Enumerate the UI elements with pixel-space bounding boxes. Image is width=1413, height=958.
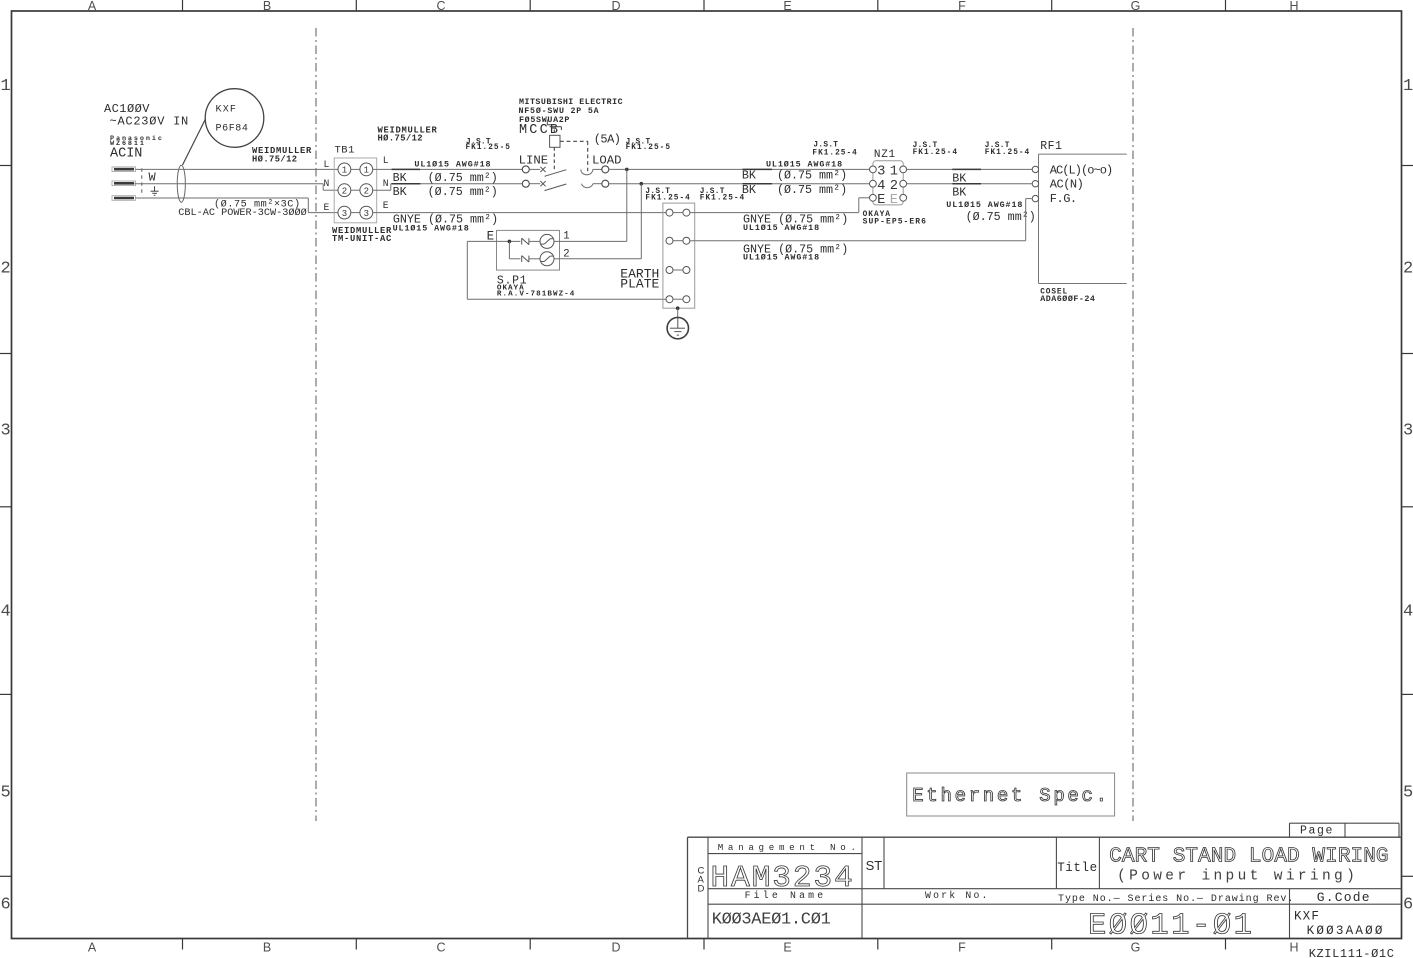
svg-text:2: 2 <box>1 260 11 279</box>
svg-text:3: 3 <box>877 164 885 179</box>
svg-text:FK1.25-5: FK1.25-5 <box>626 144 671 152</box>
svg-text:KXF: KXF <box>216 105 238 116</box>
svg-text:BK (Ø.75 mm²): BK (Ø.75 mm²) <box>742 169 847 183</box>
svg-text:CBL-AC POWER-3CW-3ØØØ: CBL-AC POWER-3CW-3ØØØ <box>178 207 306 219</box>
svg-text:1: 1 <box>563 231 569 243</box>
svg-text:LINE: LINE <box>519 153 549 167</box>
svg-text:4: 4 <box>1 603 11 622</box>
svg-text:UL1Ø15 AWG#18: UL1Ø15 AWG#18 <box>393 224 470 234</box>
svg-text:2: 2 <box>890 179 898 194</box>
svg-text:LOAD: LOAD <box>592 153 622 167</box>
svg-text:RF1: RF1 <box>1040 140 1062 153</box>
svg-text:E: E <box>324 202 330 213</box>
svg-text:3: 3 <box>1403 422 1413 441</box>
svg-text:H: H <box>1289 941 1298 955</box>
svg-text:UL1Ø15 AWG#18: UL1Ø15 AWG#18 <box>414 160 491 170</box>
svg-text:KØØ3AEØ1.CØ1: KØØ3AEØ1.CØ1 <box>712 911 831 930</box>
svg-text:FK1.25-4: FK1.25-4 <box>913 149 958 157</box>
svg-text:4: 4 <box>877 179 885 194</box>
svg-text:FK1.25-4: FK1.25-4 <box>645 194 690 202</box>
svg-text:SUP-EP5-ER6: SUP-EP5-ER6 <box>863 217 927 226</box>
svg-text:(5A): (5A) <box>594 133 621 147</box>
svg-text:E: E <box>383 200 389 211</box>
svg-text:2: 2 <box>342 186 347 196</box>
svg-text:E: E <box>890 193 898 208</box>
svg-text:KZIL111-Ø1C: KZIL111-Ø1C <box>1309 947 1395 958</box>
svg-text:KXF: KXF <box>1294 910 1320 924</box>
svg-text:G: G <box>1131 0 1141 13</box>
svg-text:AC(L)(o~o): AC(L)(o~o) <box>1050 163 1113 177</box>
svg-text:FK1.25-5: FK1.25-5 <box>466 144 511 152</box>
svg-text:H: H <box>1289 0 1298 13</box>
svg-text:BK (Ø.75 mm²): BK (Ø.75 mm²) <box>742 183 847 197</box>
svg-text:EØØ11-Ø1: EØØ11-Ø1 <box>1088 910 1254 944</box>
svg-text:Type No.— Series No.— Drawing: Type No.— Series No.— Drawing Rev. <box>1058 893 1294 905</box>
svg-text:File Name: File Name <box>745 890 827 901</box>
svg-text:L: L <box>324 159 330 170</box>
svg-text:~AC23ØV IN: ~AC23ØV IN <box>110 115 190 129</box>
svg-text:Ethernet Spec.: Ethernet Spec. <box>912 785 1109 807</box>
svg-text:1: 1 <box>890 164 898 179</box>
svg-text:W: W <box>149 170 157 184</box>
svg-text:1: 1 <box>1 77 11 96</box>
svg-text:1: 1 <box>364 166 369 176</box>
svg-text:E: E <box>783 941 791 955</box>
svg-text:ACIN: ACIN <box>110 147 142 162</box>
svg-text:Management No.: Management No. <box>718 842 861 853</box>
svg-text:TB1: TB1 <box>335 145 355 157</box>
svg-text:D: D <box>611 941 620 955</box>
svg-text:FK1.25-4: FK1.25-4 <box>700 194 745 202</box>
svg-text:F: F <box>958 941 966 955</box>
svg-text:BK: BK <box>952 185 966 199</box>
svg-text:N: N <box>383 178 389 189</box>
svg-text:6: 6 <box>1 896 11 915</box>
svg-text:D: D <box>611 0 620 13</box>
svg-text:UL1Ø15 AWG#18: UL1Ø15 AWG#18 <box>743 223 820 233</box>
svg-text:B: B <box>263 941 271 955</box>
svg-text:ADA6ØØF-24: ADA6ØØF-24 <box>1040 294 1095 304</box>
svg-text:BK (Ø.75 mm²): BK (Ø.75 mm²) <box>393 185 498 199</box>
svg-text:5: 5 <box>1403 784 1413 803</box>
svg-text:Title: Title <box>1057 861 1098 875</box>
svg-text:4: 4 <box>1403 603 1413 622</box>
svg-text:N: N <box>324 178 330 189</box>
svg-text:E: E <box>783 0 791 13</box>
svg-text:NF5Ø-SWU 2P 5A: NF5Ø-SWU 2P 5A <box>519 106 600 116</box>
svg-text:UL1Ø15 AWG#18: UL1Ø15 AWG#18 <box>946 200 1023 210</box>
svg-text:(Power input wiring): (Power input wiring) <box>1117 868 1358 884</box>
svg-text:E: E <box>877 193 885 208</box>
svg-text:CART STAND LOAD WIRING: CART STAND LOAD WIRING <box>1109 846 1388 869</box>
svg-text:1: 1 <box>342 166 347 176</box>
svg-text:UL1Ø15 AWG#18: UL1Ø15 AWG#18 <box>766 160 843 170</box>
svg-text:C: C <box>436 0 445 13</box>
svg-text:UL1Ø15 AWG#18: UL1Ø15 AWG#18 <box>743 253 820 263</box>
svg-text:KØØ3AAØØ: KØØ3AAØØ <box>1307 924 1385 938</box>
svg-text:B: B <box>263 0 271 13</box>
svg-text:C: C <box>436 941 445 955</box>
svg-text:PLATE: PLATE <box>620 276 659 291</box>
svg-text:HØ.75/12: HØ.75/12 <box>252 155 297 165</box>
svg-text:F: F <box>958 0 966 13</box>
svg-text:MITSUBISHI ELECTRIC: MITSUBISHI ELECTRIC <box>519 98 623 107</box>
svg-text:2: 2 <box>364 186 369 196</box>
svg-text:3: 3 <box>1 422 11 441</box>
svg-text:2: 2 <box>1403 260 1413 279</box>
svg-text:L: L <box>383 155 389 166</box>
svg-text:Page: Page <box>1300 824 1334 837</box>
svg-text:J.S.T: J.S.T <box>813 142 838 150</box>
svg-text:ST: ST <box>866 858 883 873</box>
svg-text:BK (Ø.75 mm²): BK (Ø.75 mm²) <box>393 171 498 185</box>
svg-text:2: 2 <box>563 248 569 260</box>
svg-text:R.A.V-781BWZ-4: R.A.V-781BWZ-4 <box>497 290 576 298</box>
svg-text:P6F84: P6F84 <box>216 123 249 134</box>
svg-text:5: 5 <box>1 784 11 803</box>
svg-text:TM-UNIT-AC: TM-UNIT-AC <box>332 234 392 244</box>
svg-text:A: A <box>88 941 97 955</box>
svg-text:F.G.: F.G. <box>1050 192 1077 206</box>
svg-text:NZ1: NZ1 <box>874 149 896 161</box>
svg-text:6: 6 <box>1403 896 1413 915</box>
svg-text:FK1.25-4: FK1.25-4 <box>812 150 857 158</box>
svg-text:D: D <box>698 884 705 895</box>
svg-text:AC(N): AC(N) <box>1050 178 1084 192</box>
svg-text:Work No.: Work No. <box>925 890 990 901</box>
svg-text:3: 3 <box>364 209 369 219</box>
svg-text:G.Code: G.Code <box>1317 890 1371 905</box>
svg-text:1: 1 <box>1403 77 1413 96</box>
svg-text:3: 3 <box>342 209 347 219</box>
svg-text:A: A <box>88 0 97 13</box>
svg-text:FK1.25-4: FK1.25-4 <box>985 149 1030 157</box>
svg-text:HØ.75/12: HØ.75/12 <box>378 133 423 143</box>
